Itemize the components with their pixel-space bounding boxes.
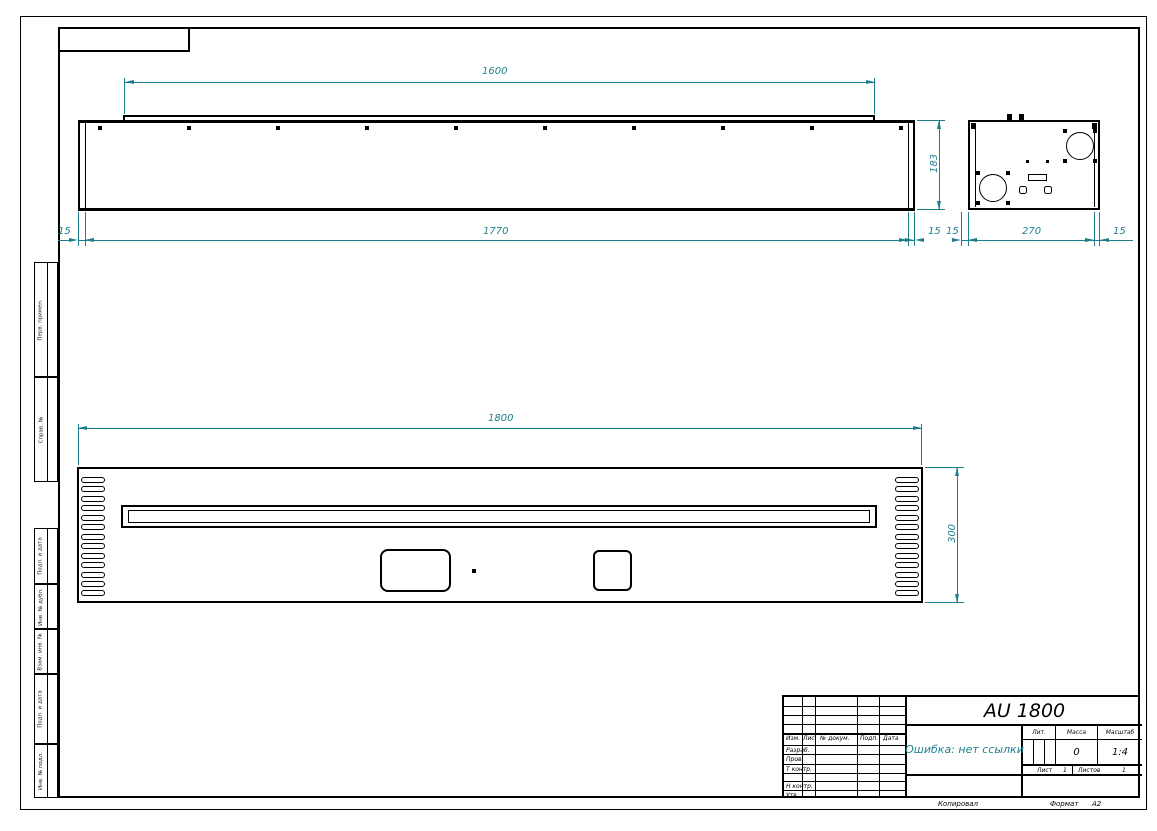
side-view-top-tab	[1019, 114, 1024, 120]
format-label: Формат	[1050, 800, 1078, 808]
louver-slot	[81, 496, 105, 502]
margin-label-vzam-inv: Взам. инв. №	[38, 633, 44, 670]
dim-label-1600: 1600	[482, 66, 507, 77]
louver-slot	[895, 486, 919, 492]
front-small-dot	[472, 569, 476, 573]
side-view-slot	[1028, 174, 1047, 181]
louver-slot	[895, 572, 919, 578]
louver-slot	[81, 553, 105, 559]
margin-box-divider	[47, 263, 48, 376]
dim-arrow	[955, 467, 959, 476]
louver-slot	[895, 524, 919, 530]
ext-line	[917, 209, 945, 210]
louver-slot	[895, 496, 919, 502]
designation-note: Ошибка: нет ссылки	[909, 726, 1020, 773]
top-view-hole	[187, 126, 191, 130]
margin-label-wrap: Справ. №	[35, 378, 47, 481]
louver-slot	[81, 581, 105, 587]
louver-slot	[81, 486, 105, 492]
front-view-body	[77, 467, 923, 603]
dim-line-270	[968, 240, 1094, 241]
louver-slot	[81, 515, 105, 521]
tb-col-ndokum: № докум.	[820, 735, 858, 742]
side-view-corner-mark	[971, 123, 976, 129]
top-view-hole	[810, 126, 814, 130]
tb-scale-label: Масштаб	[1098, 726, 1142, 738]
margin-label-wrap: Инв. № дубл.	[35, 585, 47, 628]
louver-slot	[895, 590, 919, 596]
fan-cutout	[979, 174, 1007, 202]
fan-mount-hole	[1006, 171, 1010, 175]
top-view-hole	[365, 126, 369, 130]
margin-label-wrap: Подп. и дата	[35, 529, 47, 583]
louver-slot	[81, 505, 105, 511]
tb-mass-value: 0	[1056, 740, 1097, 764]
fan-mount-hole	[1093, 129, 1097, 133]
margin-box-inv-podl: Инв. № подл.	[34, 744, 58, 798]
dim-arrow	[866, 80, 875, 84]
louver-slot	[895, 562, 919, 568]
dim-arrow	[968, 238, 977, 242]
tb-col-podp: Подп.	[860, 735, 880, 742]
top-view-hole	[98, 126, 102, 130]
louver-slot	[895, 515, 919, 521]
tb-col-data: Дата	[883, 735, 907, 742]
dim-arrow	[937, 201, 941, 210]
louver-slot	[81, 543, 105, 549]
tb-row-utv: Утв.	[786, 792, 816, 799]
fan-mount-hole	[1093, 159, 1097, 163]
ext-line	[921, 424, 922, 465]
fan-mount-hole	[1006, 201, 1010, 205]
margin-box-divider	[47, 585, 48, 628]
front-long-slot-inner	[128, 510, 870, 523]
format-value: А2	[1092, 800, 1101, 808]
tb-row-prov: Пров.	[786, 756, 816, 763]
front-switch-cutout	[593, 550, 632, 591]
louver-slot	[895, 543, 919, 549]
margin-box-podp-data-1: Подп. и дата	[34, 528, 58, 584]
fan-mount-hole	[1063, 159, 1067, 163]
side-view-inner-left-line	[975, 123, 976, 207]
margin-label-perv-primen: Перв. примен.	[38, 299, 44, 340]
louver-slot	[81, 562, 105, 568]
tb-col-list: Лист	[803, 735, 816, 742]
side-view-top-tab	[1007, 114, 1012, 120]
side-view-dot	[1046, 160, 1049, 163]
margin-box-podp-data-2: Подп. и дата	[34, 674, 58, 744]
dim-label-15-left: 15	[58, 226, 71, 237]
top-view-inner-left-line	[85, 123, 86, 208]
fan-mount-hole	[976, 201, 980, 205]
dim-line-15-left	[78, 240, 85, 241]
margin-box-divider	[47, 675, 48, 743]
drawing-title: AU 1800	[907, 698, 1142, 723]
fan-cutout	[1066, 132, 1094, 160]
tb-row-nkontr: Н контр.	[786, 783, 816, 790]
dim-arrow	[1085, 238, 1094, 242]
dim-arrow	[913, 426, 922, 430]
tb-col-izm: Изм.	[786, 735, 802, 742]
louver-slot	[895, 534, 919, 540]
top-view-inner-right-line	[908, 123, 909, 208]
tb-lit-label: Лит.	[1023, 726, 1055, 738]
tb-mass-label: Масса	[1056, 726, 1097, 738]
dim-line-1800	[78, 428, 922, 429]
tb-row-razrab: Разраб.	[786, 747, 816, 754]
margin-box-divider	[47, 630, 48, 673]
dim-label-270: 270	[1022, 226, 1041, 237]
dim-label-1800: 1800	[488, 413, 513, 424]
copied-label: Копировал	[938, 800, 978, 808]
top-view-hole	[721, 126, 725, 130]
louver-slot	[895, 505, 919, 511]
dim-label-300: 300	[947, 524, 958, 543]
margin-label-wrap: Перв. примен.	[35, 263, 47, 376]
top-view-hole	[632, 126, 636, 130]
louver-slot	[81, 477, 105, 483]
margin-label-inv-podl: Инв. № подл.	[38, 752, 44, 790]
tb-sheets-value: 1	[1122, 767, 1126, 774]
margin-box-sprav-no: Справ. №	[34, 377, 58, 482]
side-view-inner-right-line	[1094, 123, 1095, 207]
margin-label-wrap: Инв. № подл.	[35, 745, 47, 797]
tb-scale-value: 1:4	[1098, 740, 1142, 764]
dim-line-15-b	[961, 240, 968, 241]
fan-mount-hole	[976, 171, 980, 175]
dim-arrow	[78, 426, 87, 430]
tb-sheet-value: 1	[1063, 767, 1067, 774]
tb-sheets-label: Листов	[1078, 767, 1100, 774]
dim-line-1600	[125, 82, 875, 83]
ext-line	[917, 120, 945, 121]
dim-arrow	[125, 80, 134, 84]
dim-label-15-a: 15	[928, 226, 941, 237]
dim-line-15-a	[908, 240, 915, 241]
tb-row-tkontr: Т контр.	[786, 766, 816, 773]
top-designation-box	[58, 27, 190, 52]
margin-label-wrap: Взам. инв. №	[35, 630, 47, 673]
ext-line	[78, 424, 79, 465]
fan-mount-hole	[1063, 129, 1067, 133]
margin-box-divider	[47, 745, 48, 797]
front-window-cutout	[380, 549, 451, 592]
top-view-body	[78, 120, 915, 211]
drawing-sheet: Перв. примен. Справ. № Подп. и дата Инв.…	[0, 0, 1157, 831]
dim-arrow	[85, 238, 94, 242]
louver-slot	[81, 572, 105, 578]
margin-box-divider	[47, 378, 48, 481]
tb-sheet-label: Лист	[1037, 767, 1052, 774]
dim-arrow	[69, 238, 78, 242]
dim-arrow	[955, 594, 959, 603]
margin-label-podp-data-1: Подп. и дата	[38, 537, 44, 574]
dim-label-183: 183	[929, 154, 940, 173]
dim-label-15-c: 15	[1113, 226, 1126, 237]
dim-arrow	[915, 238, 924, 242]
margin-label-sprav-no: Справ. №	[38, 416, 44, 443]
top-view-hole	[276, 126, 280, 130]
margin-box-vzam-inv: Взам. инв. №	[34, 629, 58, 674]
top-view-hole	[454, 126, 458, 130]
dim-arrow	[952, 238, 961, 242]
side-view-round-hole	[1044, 186, 1052, 194]
margin-box-perv-primen: Перв. примен.	[34, 262, 58, 377]
margin-label-wrap: Подп. и дата	[35, 675, 47, 743]
dim-tail	[1100, 240, 1133, 241]
louver-slot	[81, 524, 105, 530]
margin-box-inv-dubl: Инв. № дубл.	[34, 584, 58, 629]
dim-line-1770	[85, 240, 914, 241]
louver-slot	[81, 534, 105, 540]
top-view-hole	[543, 126, 547, 130]
top-view-hole	[899, 126, 903, 130]
side-view-dot	[1026, 160, 1029, 163]
dim-arrow	[937, 120, 941, 129]
dim-label-1770: 1770	[483, 226, 508, 237]
louver-slot	[895, 553, 919, 559]
dim-arrow	[899, 238, 908, 242]
louver-slot	[895, 581, 919, 587]
margin-box-divider	[47, 529, 48, 583]
side-view-round-hole	[1019, 186, 1027, 194]
margin-label-podp-data-2: Подп. и дата	[38, 690, 44, 727]
dim-label-15-b: 15	[946, 226, 959, 237]
margin-label-inv-dubl: Инв. № дубл.	[38, 588, 44, 626]
title-block: Изм. Лист № докум. Подп. Дата Разраб. Пр…	[782, 695, 1140, 798]
louver-slot	[895, 477, 919, 483]
louver-slot	[81, 590, 105, 596]
